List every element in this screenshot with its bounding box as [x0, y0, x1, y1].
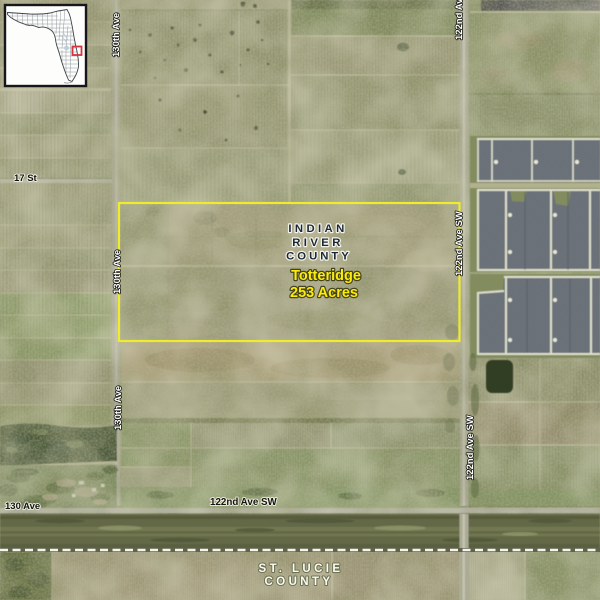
- svg-text:130th Ave: 130th Ave: [112, 250, 123, 294]
- svg-text:COUNTY: COUNTY: [286, 251, 352, 263]
- svg-text:COUNTY: COUNTY: [265, 576, 334, 588]
- svg-text:122nd Ave SW: 122nd Ave SW: [465, 415, 476, 480]
- svg-text:Totteridge: Totteridge: [291, 268, 361, 284]
- svg-text:17 St: 17 St: [14, 173, 38, 184]
- svg-text:INDIAN: INDIAN: [288, 223, 347, 235]
- svg-text:ST. LUCIE: ST. LUCIE: [259, 563, 344, 575]
- svg-text:122nd Ave SW: 122nd Ave SW: [210, 497, 278, 508]
- svg-text:130 Ave: 130 Ave: [5, 501, 40, 512]
- svg-text:253 Acres: 253 Acres: [290, 285, 358, 301]
- svg-text:122nd Ave: 122nd Ave: [454, 0, 465, 40]
- svg-text:122nd Ave SW: 122nd Ave SW: [454, 211, 465, 276]
- svg-text:RIVER: RIVER: [292, 237, 344, 249]
- svg-text:130th Ave: 130th Ave: [113, 386, 124, 430]
- svg-text:130th Ave: 130th Ave: [111, 13, 122, 57]
